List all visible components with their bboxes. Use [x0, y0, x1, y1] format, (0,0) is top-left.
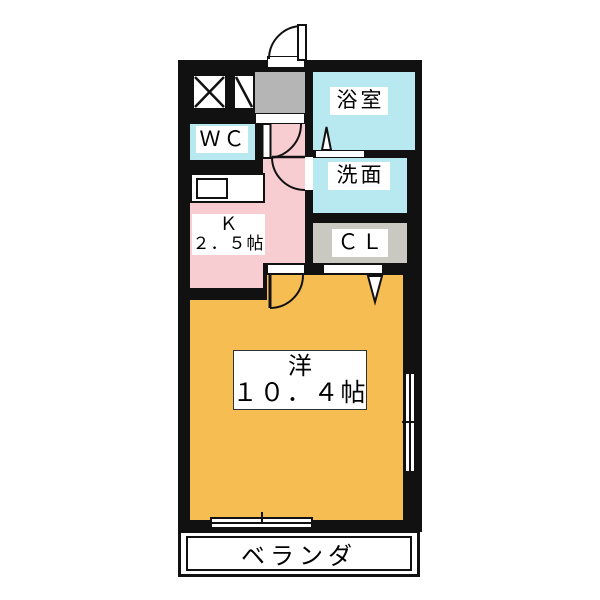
living-door-sill	[267, 264, 305, 274]
closet-label: ＣＬ	[335, 231, 386, 254]
kitchen-size-label: ２．５帖	[193, 235, 265, 254]
hall-step-sill	[255, 113, 305, 124]
wall-left	[178, 60, 190, 532]
wall-under-shafts	[190, 112, 263, 124]
closet-door-sill	[323, 264, 383, 274]
sliding-window-east	[404, 372, 416, 473]
sliding-window-south	[210, 517, 313, 529]
bath-label-box: 浴室	[330, 87, 388, 115]
living-label: 洋	[288, 353, 312, 379]
closet-label-box: ＣＬ	[332, 229, 388, 257]
shaft-cross-box	[194, 76, 225, 108]
living-label-box: 洋 １０．４帖	[233, 350, 367, 410]
shaft-diagonal-box	[235, 76, 253, 108]
wall-kitchen-bottom	[190, 288, 267, 300]
kitchen-label-box: Ｋ ２．５帖	[192, 214, 265, 255]
washroom-label: 洗面	[334, 164, 385, 187]
wc-label-box: ＷＣ	[196, 126, 248, 153]
bath-door-sill	[315, 150, 365, 158]
floor-plan: ベランダ 浴室 洗面 ＷＣ ＣＬ Ｋ ２．５帖 洋 １０．４帖	[0, 0, 600, 600]
bath-label: 浴室	[334, 89, 385, 112]
washroom-label-box: 洗面	[328, 162, 390, 190]
entrance-sill	[267, 56, 305, 68]
wall-wc-bottom	[190, 160, 263, 173]
wall-washroom-bottom	[313, 213, 407, 223]
veranda-label: ベランダ	[241, 536, 357, 571]
kitchen-label: Ｋ	[220, 215, 238, 235]
kitchen-sink	[196, 178, 228, 199]
corridor-area	[263, 124, 305, 263]
wc-label: ＷＣ	[197, 128, 248, 151]
living-room-left	[190, 300, 267, 520]
entrance-area	[255, 72, 305, 113]
living-size-label: １０．４帖	[233, 379, 368, 407]
veranda-label-box: ベランダ	[186, 536, 412, 571]
wall-corridor-right-upper	[305, 60, 313, 157]
entrance-door-swing-icon	[269, 25, 306, 60]
